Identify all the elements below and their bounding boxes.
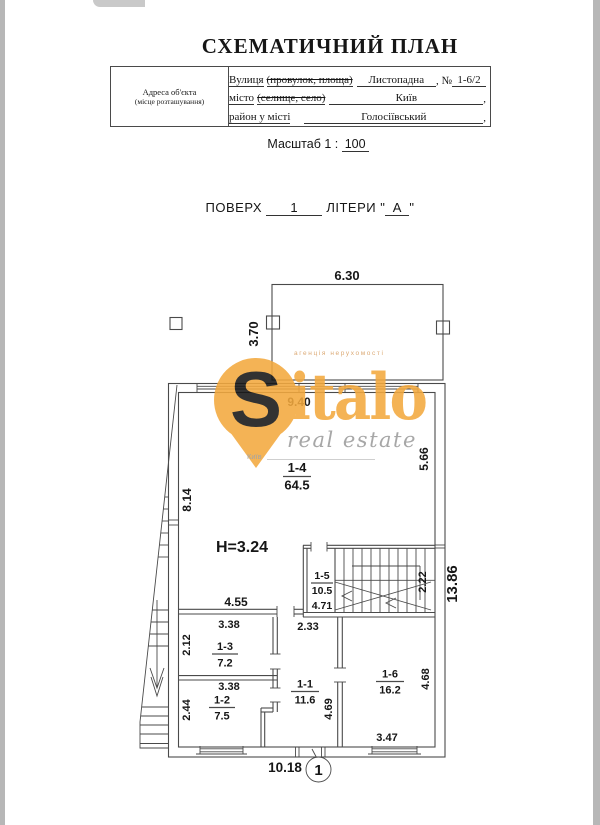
dim-right-total: 13.86 xyxy=(444,565,461,603)
city-suffix: , xyxy=(483,93,486,105)
quote-close: " xyxy=(409,200,414,215)
room-1-6-id: 1-6 xyxy=(382,669,398,681)
page-title: СХЕМАТИЧНИЙ ПЛАН xyxy=(60,34,600,59)
dim-terrace-width: 6.30 xyxy=(334,268,359,283)
dim-terrace-depth: 3.70 xyxy=(246,321,261,346)
scale-value: 100 xyxy=(342,137,369,152)
room-1-2-area: 7.5 xyxy=(214,711,229,723)
address-table-header: Адреса об'єкта (місце розташування) xyxy=(111,67,229,126)
dim-top: 9.40 xyxy=(287,395,311,409)
room-1-3-area: 7.2 xyxy=(217,658,232,670)
district-value: Голосіївський xyxy=(361,111,426,123)
address-row-street: Вулиця (провулок, площа) Листопадна , № … xyxy=(229,68,486,87)
windows-and-entrance xyxy=(196,746,421,758)
room-1-4-area: 64.5 xyxy=(284,478,309,493)
dim-left: 8.14 xyxy=(180,488,194,512)
room-1-1-id: 1-1 xyxy=(297,679,313,691)
room-1-3-id: 1-3 xyxy=(217,641,233,653)
street-value: Листопадна xyxy=(369,74,425,86)
address-header-line2: (місце розташування) xyxy=(111,97,228,107)
dim-r16-bottom: 3.47 xyxy=(376,732,397,744)
entrance-marker-number: 1 xyxy=(314,762,322,779)
room-1-5-id: 1-5 xyxy=(314,570,329,582)
room-1-2-id: 1-2 xyxy=(214,695,230,707)
room-1-4-id: 1-4 xyxy=(288,460,308,475)
room-1-5-area: 10.5 xyxy=(312,585,333,597)
letters-value: А xyxy=(385,200,409,216)
city-label: місто xyxy=(229,92,254,105)
dim-r13-w: 3.38 xyxy=(218,619,239,631)
dim-stair-bottom: 4.71 xyxy=(312,600,333,612)
street-label: Вулиця xyxy=(229,74,264,87)
dim-right: 5.66 xyxy=(417,447,431,471)
floor-line: ПОВЕРХ 1 ЛІТЕРИ "А" xyxy=(10,200,600,216)
district-suffix: , xyxy=(483,112,486,124)
dim-room14-bottom: 4.55 xyxy=(224,595,248,609)
exterior-staircase xyxy=(140,385,177,748)
address-header-line1: Адреса об'єкта xyxy=(111,87,228,97)
dim-stair-width: 2.22 xyxy=(417,571,429,592)
address-table: Адреса об'єкта (місце розташування) Вули… xyxy=(110,66,491,127)
ceiling-height-label: H=3.24 xyxy=(216,539,268,556)
interior-walls xyxy=(179,606,347,747)
street-suffix: , № xyxy=(436,75,452,87)
dim-bottom-total: 10.18 xyxy=(268,760,302,775)
dim-r12-d: 2.44 xyxy=(181,698,193,720)
room-1-6-area: 16.2 xyxy=(379,685,400,697)
dim-r11-d: 4.69 xyxy=(323,698,335,719)
dim-r13-d: 2.12 xyxy=(181,634,193,655)
city-value: Київ xyxy=(396,92,417,104)
street-struck-text: (провулок, площа) xyxy=(267,74,353,87)
floor-label: ПОВЕРХ xyxy=(206,200,263,215)
terrace-outline xyxy=(170,285,450,381)
document-page: СХЕМАТИЧНИЙ ПЛАН Адреса об'єкта (місце р… xyxy=(0,0,600,825)
floor-value: 1 xyxy=(266,200,322,216)
city-struck-text: (селище, село) xyxy=(257,92,325,105)
dim-hall-top: 2.33 xyxy=(297,621,318,633)
address-row-city: місто (селище, село) Київ , xyxy=(229,87,486,106)
dim-r16-d: 4.68 xyxy=(420,668,432,689)
room-1-1-area: 11.6 xyxy=(295,695,316,707)
address-row-district: район у місті Голосіївський , xyxy=(229,105,486,124)
floor-plan-drawing: 6.30 3.70 xyxy=(0,255,600,800)
scale-label: Масштаб 1 : xyxy=(267,137,338,151)
dim-r12-w: 3.38 xyxy=(218,681,239,693)
scale-line: Масштаб 1 : 100 xyxy=(18,137,600,151)
page-edge-left xyxy=(0,0,5,825)
district-label: район у місті xyxy=(229,111,290,124)
street-number: 1-6/2 xyxy=(452,74,486,87)
letters-label: ЛІТЕРИ xyxy=(326,200,376,215)
top-notch xyxy=(93,0,145,7)
page-edge-right xyxy=(593,0,600,825)
